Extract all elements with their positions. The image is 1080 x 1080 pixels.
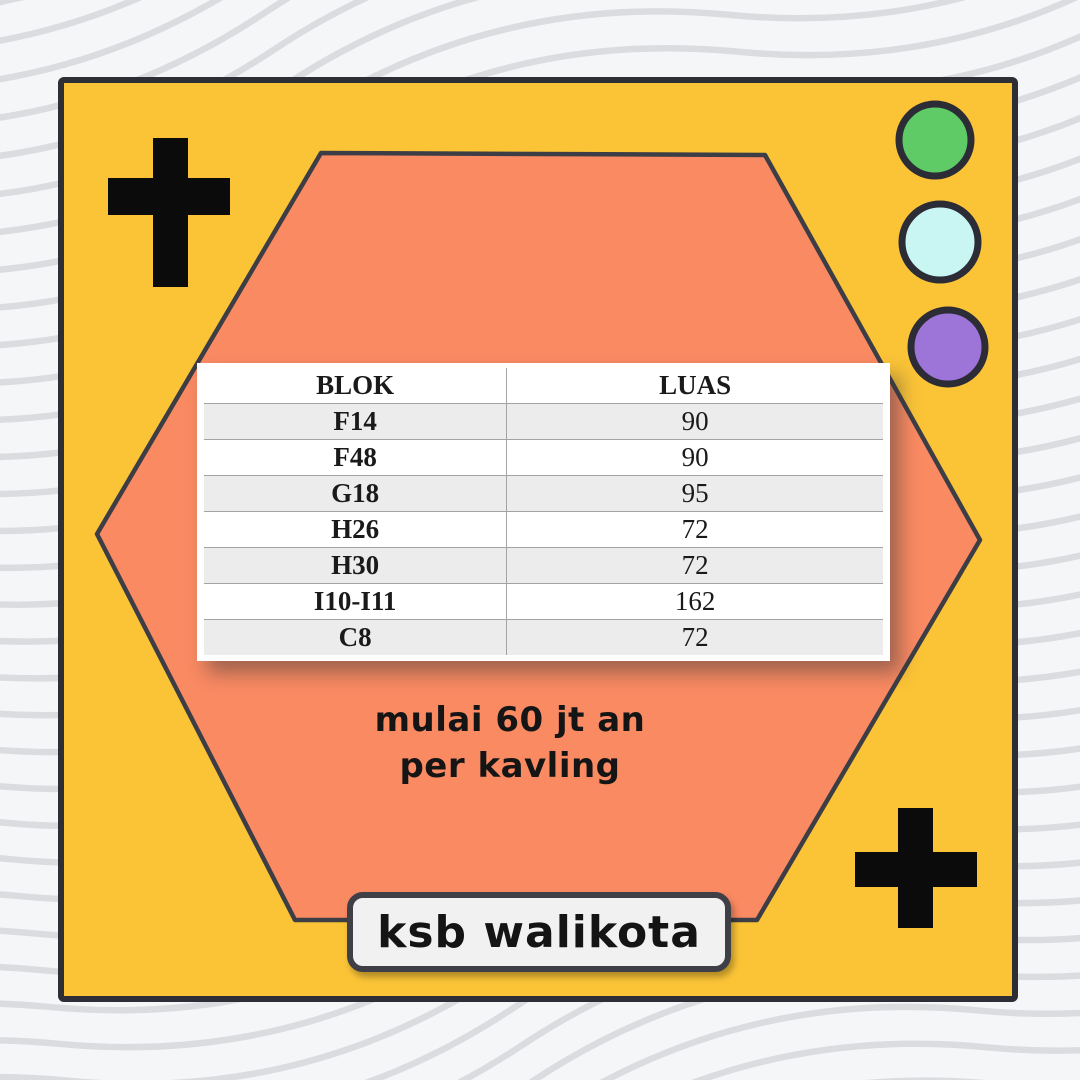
blok-cell: H30 bbox=[204, 548, 507, 584]
table-header-luas: LUAS bbox=[507, 368, 883, 404]
luas-cell: 90 bbox=[507, 404, 883, 440]
table-row: I10-I11162 bbox=[204, 584, 883, 620]
table-body: F1490F4890G1895H2672H3072I10-I11162C872 bbox=[204, 404, 883, 656]
price-table: BLOK LUAS F1490F4890G1895H2672H3072I10-I… bbox=[204, 368, 883, 655]
table-row: H2672 bbox=[204, 512, 883, 548]
price-line-2: per kavling bbox=[288, 743, 732, 789]
price-text: mulai 60 jt an per kavling bbox=[288, 697, 732, 789]
project-label: ksb walikota bbox=[347, 892, 731, 972]
blok-cell: I10-I11 bbox=[204, 584, 507, 620]
blok-cell: G18 bbox=[204, 476, 507, 512]
luas-cell: 72 bbox=[507, 548, 883, 584]
table-row: F4890 bbox=[204, 440, 883, 476]
blok-cell: F48 bbox=[204, 440, 507, 476]
blok-cell: H26 bbox=[204, 512, 507, 548]
luas-cell: 90 bbox=[507, 440, 883, 476]
table-row: C872 bbox=[204, 620, 883, 656]
blok-cell: C8 bbox=[204, 620, 507, 656]
table-row: H3072 bbox=[204, 548, 883, 584]
price-line-1: mulai 60 jt an bbox=[288, 697, 732, 743]
table-row: G1895 bbox=[204, 476, 883, 512]
blok-cell: F14 bbox=[204, 404, 507, 440]
price-table-container: BLOK LUAS F1490F4890G1895H2672H3072I10-I… bbox=[197, 363, 890, 661]
project-label-text: ksb walikota bbox=[377, 907, 701, 958]
poster: BLOK LUAS F1490F4890G1895H2672H3072I10-I… bbox=[0, 0, 1080, 1080]
luas-cell: 162 bbox=[507, 584, 883, 620]
table-header-blok: BLOK bbox=[204, 368, 507, 404]
luas-cell: 72 bbox=[507, 620, 883, 656]
luas-cell: 72 bbox=[507, 512, 883, 548]
table-header-row: BLOK LUAS bbox=[204, 368, 883, 404]
luas-cell: 95 bbox=[507, 476, 883, 512]
table-row: F1490 bbox=[204, 404, 883, 440]
